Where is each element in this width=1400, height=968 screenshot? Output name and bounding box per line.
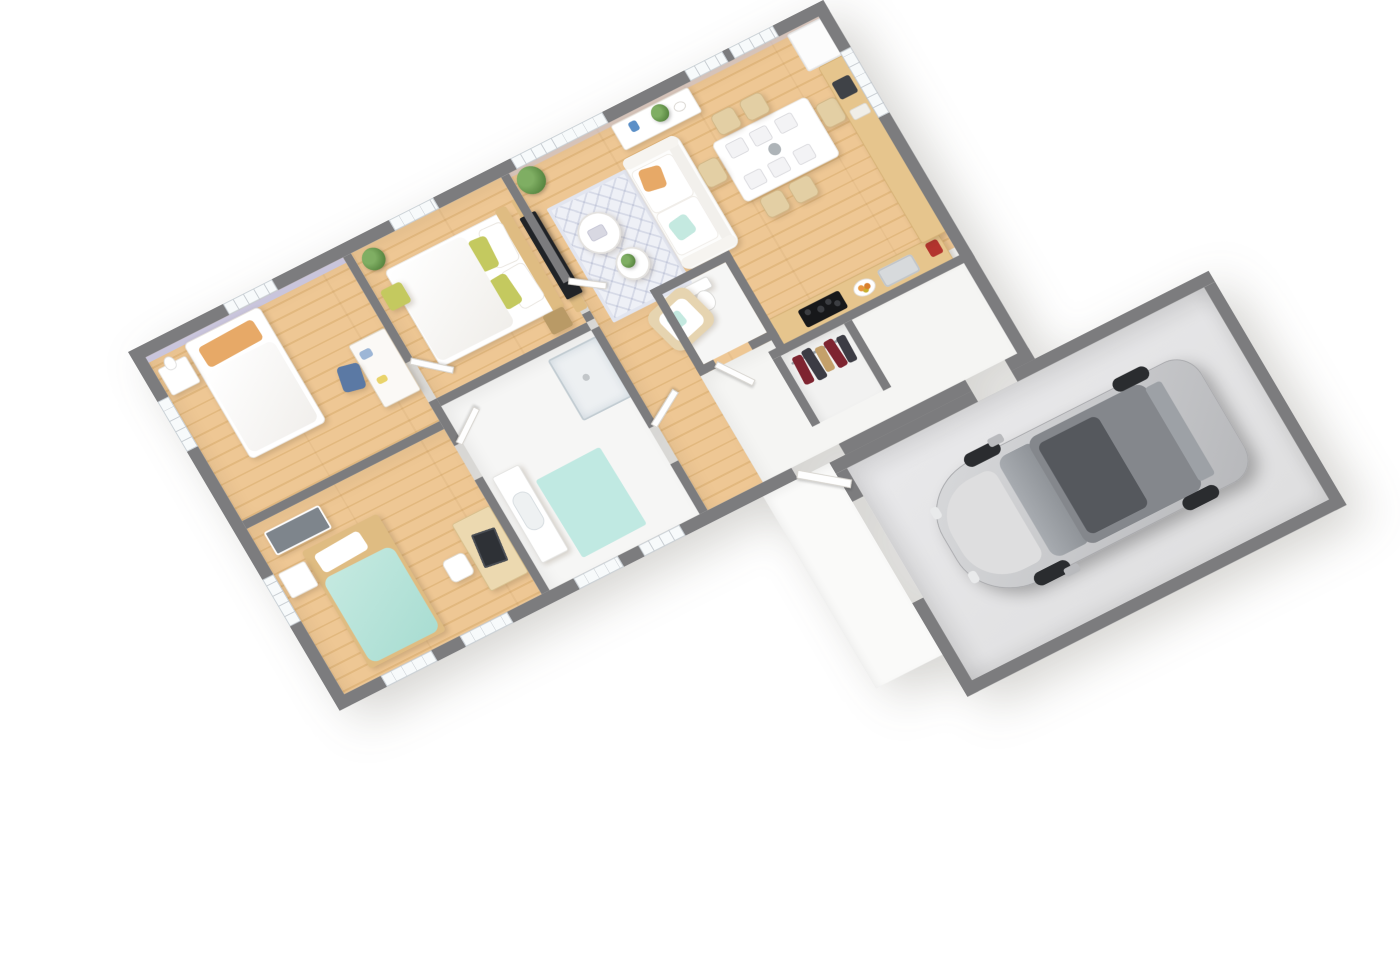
- floor-plan-scene: [128, 0, 1376, 968]
